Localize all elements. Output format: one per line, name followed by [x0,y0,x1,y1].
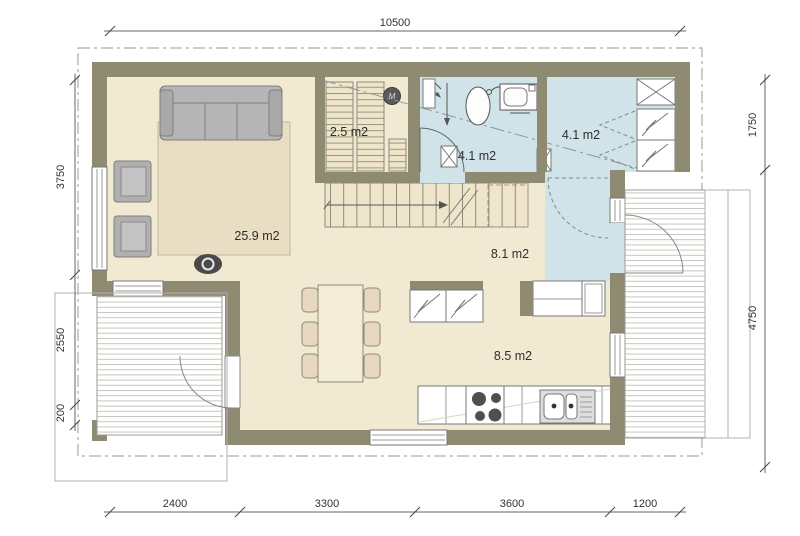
room-label-living: 25.9 m2 [234,229,279,243]
dining-set [302,285,380,382]
utility-marker-letter: M [389,92,396,101]
room-label-hall: 8.1 m2 [491,247,529,261]
armchair [114,161,151,202]
closet-zigzag-icon [637,109,675,140]
wardrobe-x-icon [637,79,675,105]
wall-bath-entry [537,77,547,172]
dim-bottom-3: 3600 [500,498,524,510]
wall-bath-south-b [465,172,545,183]
floor-plan-page: 25.9 m2 [0,0,800,536]
dining-chair [364,322,380,346]
duct-shaft [423,79,435,108]
room-label-storage: 2.5 m2 [330,125,368,139]
deck-left [97,296,222,435]
dining-chair [364,354,380,378]
shelf-unit [389,139,406,171]
wall-east-top [675,62,690,172]
window-west [92,167,107,270]
dining-chair [302,354,318,378]
floor-corridor [545,172,610,281]
washbasin-icon [500,84,537,113]
armchair [114,216,151,257]
wall-stub-kitchen [520,281,533,316]
dim-left-3: 200 [55,404,67,422]
bathroom-door-opening [420,172,465,183]
dim-bottom-2: 3300 [315,498,339,510]
dim-bottom-1: 2400 [163,498,187,510]
window-dining-south [370,430,447,445]
dim-top: 10500 [104,17,686,36]
room-label-entry: 4.1 m2 [562,128,600,142]
stove-speaker-icon [194,254,222,274]
kitchen-sink [540,390,595,423]
deck-right [625,190,705,438]
window-east-1 [610,198,625,223]
wall-bath-south-a [315,172,420,183]
dim-left-2: 2550 [55,328,67,352]
window-living-south [113,281,163,296]
dim-bottom-4: 1200 [633,498,657,510]
floor-plan-drawing: 25.9 m2 [0,0,800,536]
hall-bench [533,281,605,316]
dim-left-1: 3750 [55,165,67,189]
dim-top-value: 10500 [380,17,411,29]
sideboard [410,281,483,322]
cooktop [466,386,504,424]
wall-storage-left [315,77,325,183]
room-label-kitchen: 8.5 m2 [494,349,532,363]
dining-chair [302,322,318,346]
dim-bottom: 2400 3300 3600 1200 [104,498,686,517]
dining-chair [364,288,380,312]
dining-table [318,285,363,382]
dim-left: 3750 2550 200 [55,74,80,431]
room-label-bathroom: 4.1 m2 [458,149,496,163]
wall-bath-left [408,77,420,183]
wall-north [92,62,690,77]
entry-door-opening [610,223,625,273]
dining-chair [302,288,318,312]
shaft-x-icon [441,146,457,167]
window-east-2 [610,333,625,377]
dim-right-1: 1750 [747,113,759,137]
dim-right-2: 4750 [747,306,759,330]
closet-zigzag-icon [637,140,675,171]
sofa [160,86,282,140]
